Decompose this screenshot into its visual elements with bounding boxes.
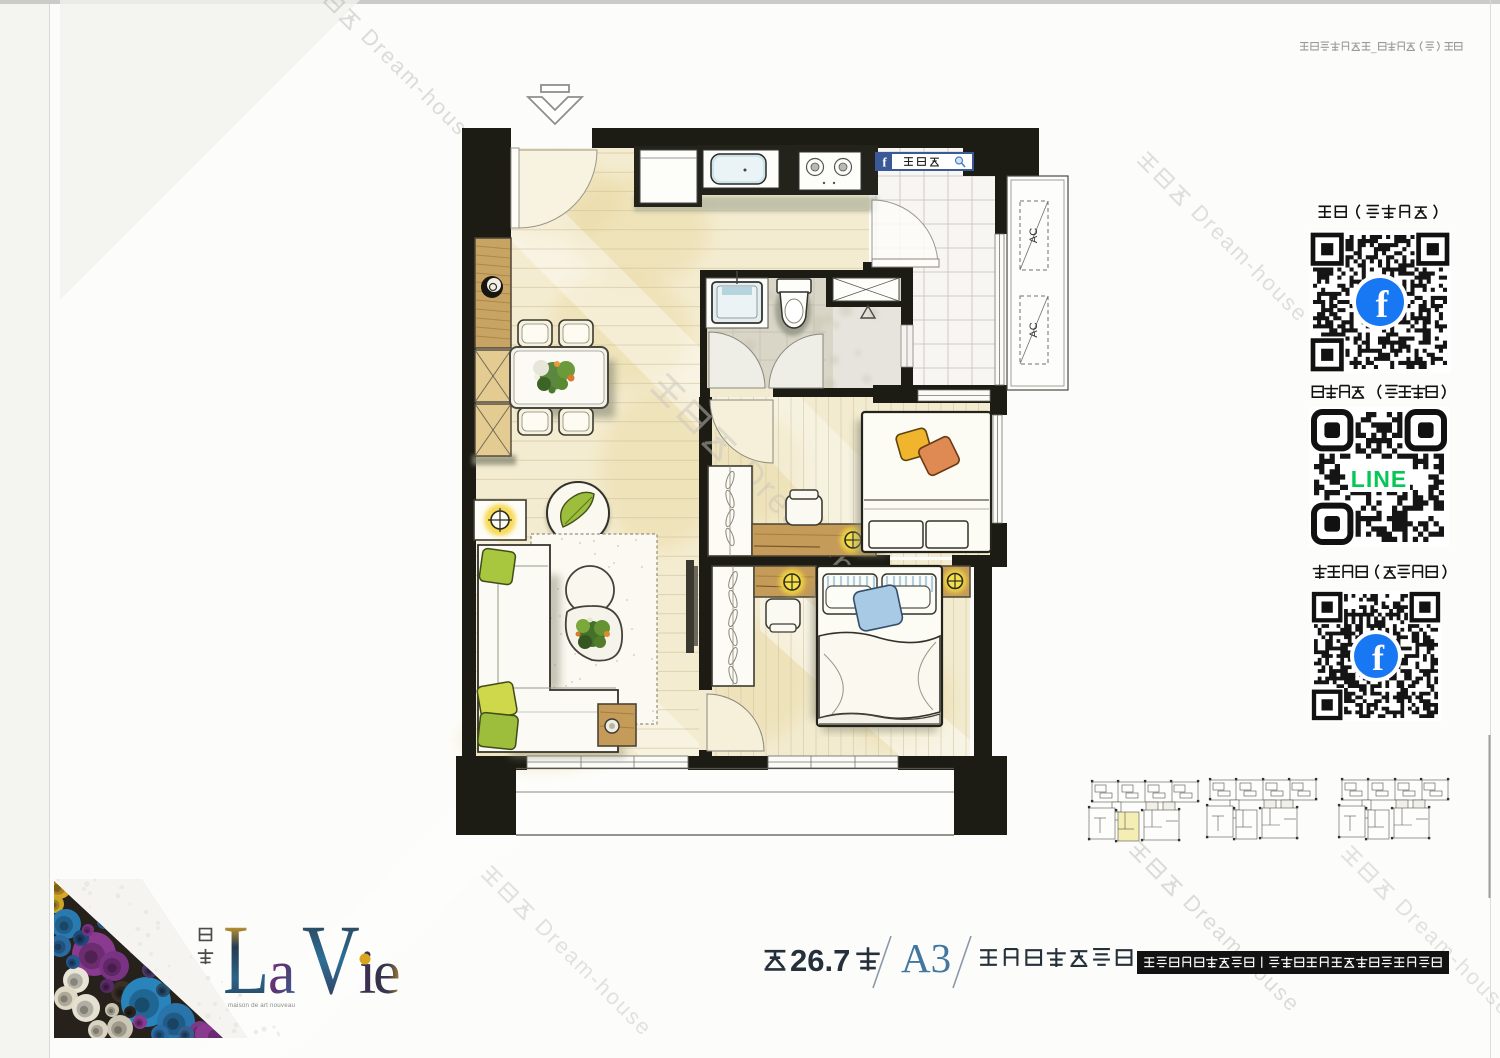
svg-text:_: _ [1370, 43, 1377, 54]
svg-text:a: a [268, 939, 296, 1007]
svg-text:f: f [882, 155, 887, 170]
svg-text:V: V [302, 904, 360, 1016]
svg-text:LINE: LINE [1351, 466, 1407, 492]
svg-text:f: f [1372, 638, 1385, 678]
svg-text:f: f [1376, 284, 1390, 326]
svg-text:26.7: 26.7 [790, 943, 850, 978]
svg-text:A3: A3 [901, 935, 951, 981]
svg-text:L: L [223, 905, 269, 1015]
svg-text:AC: AC [1028, 228, 1040, 243]
svg-text:maison de art nouveau: maison de art nouveau [228, 1002, 296, 1009]
svg-text:AC: AC [1028, 322, 1040, 337]
svg-text:e: e [373, 939, 401, 1007]
